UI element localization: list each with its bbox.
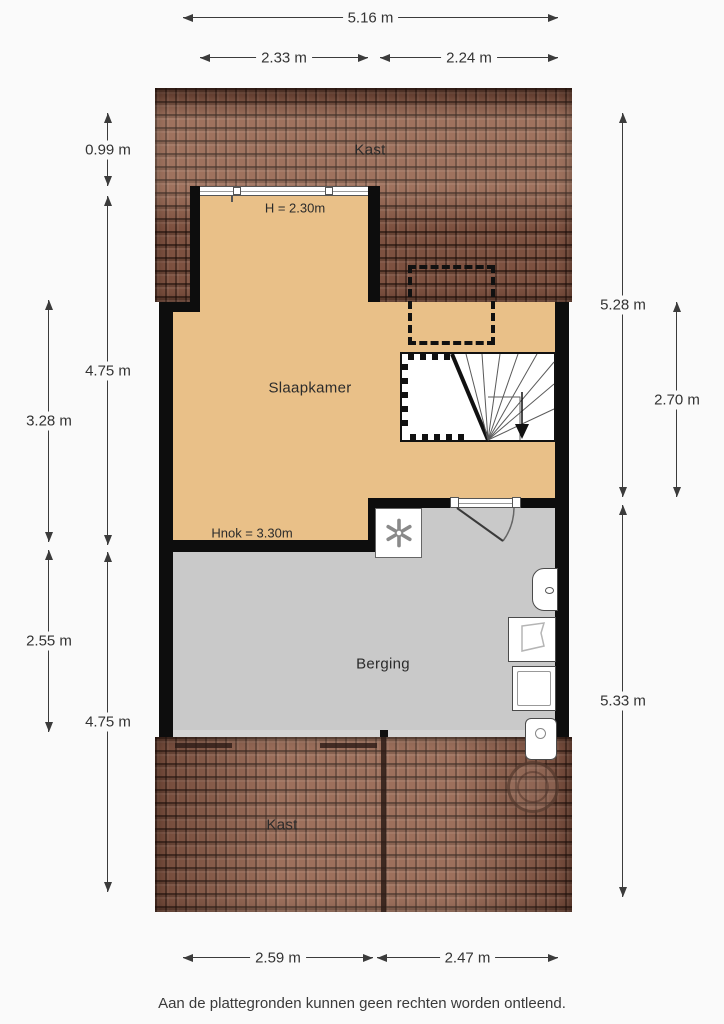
round-tank-vent: [507, 761, 559, 813]
dimension-label: 2.59 m: [250, 949, 306, 968]
wall-slaapkamer-bottom: [159, 540, 380, 552]
dimension-label: 2.33 m: [256, 49, 312, 68]
shower-tray: [525, 718, 557, 760]
dimension-label: 2.55 m: [21, 632, 77, 651]
dimension-bottom-right: 2.47 m: [377, 957, 558, 958]
dimension-bottom-left: 2.59 m: [183, 957, 373, 958]
berging-floor: [173, 552, 555, 737]
washing-machine-door: [517, 671, 551, 706]
window-tick: [231, 196, 233, 202]
floorplan: Kast H = 2.30m Slaapkamer Hnok = 3.30m B…: [155, 88, 572, 912]
washbasin: [532, 568, 558, 611]
washing-machine: [512, 666, 556, 711]
dimension-top-right: 2.24 m: [380, 57, 558, 58]
dimension-label: 2.70 m: [649, 390, 705, 409]
dimension-label: 4.75 m: [80, 361, 136, 380]
dimension-right-inner: 2.70 m: [676, 302, 677, 497]
dimension-label: 4.75 m: [80, 713, 136, 732]
ventilation-unit: [375, 508, 422, 558]
room-label-berging: Berging: [356, 656, 410, 673]
wall-dormer-right: [368, 186, 380, 302]
boiler: [508, 617, 556, 662]
window-mullion: [233, 187, 241, 195]
ridge-height-note: Hnok = 3.30m: [211, 526, 292, 541]
dimension-left-outer-upper: 3.28 m: [48, 300, 49, 542]
floorplan-page: { "page": { "background": "#fafafa", "di…: [0, 0, 724, 1024]
dimension-label: 0.99 m: [80, 140, 136, 159]
fan-icon: [381, 515, 417, 551]
dimension-label: 5.16 m: [343, 9, 399, 28]
dimension-label: 3.28 m: [21, 412, 77, 431]
height-note: H = 2.30m: [265, 201, 325, 216]
room-label-slaapkamer: Slaapkamer: [268, 380, 351, 397]
dormer-window: [200, 186, 368, 196]
dimension-top-left: 2.33 m: [200, 57, 368, 58]
wall-berging-top-left: [368, 498, 452, 508]
dimension-left-berging: 4.75 m: [107, 552, 108, 892]
dimension-left-dormer: 0.99 m: [107, 113, 108, 186]
roof-wall-mark: [175, 743, 232, 748]
wall-dormer-left: [190, 186, 200, 302]
dimension-left-slaapkamer: 4.75 m: [107, 196, 108, 545]
room-label-kast-top: Kast: [354, 142, 385, 159]
roof-wall-mark: [320, 743, 377, 748]
disclaimer-text: Aan de plattegronden kunnen geen rechten…: [0, 995, 724, 1012]
roof-divider-line: [381, 737, 386, 912]
dimension-label: 5.28 m: [595, 296, 651, 315]
dimension-label: 2.47 m: [440, 949, 496, 968]
floor-edge-tick: [380, 730, 388, 737]
dimension-label: 5.33 m: [595, 692, 651, 711]
wall-outer-right: [555, 302, 569, 737]
dimension-right-lower: 5.33 m: [622, 505, 623, 897]
vide-opening: [408, 265, 495, 345]
round-tank-inner-ring: [517, 771, 549, 803]
dimension-label: 2.24 m: [441, 49, 497, 68]
dimension-top-total: 5.16 m: [183, 17, 558, 18]
room-label-kast-bottom: Kast: [266, 817, 297, 834]
dimension-right-upper: 5.28 m: [622, 113, 623, 497]
wall-outer-left: [159, 302, 173, 737]
door-swing-arc: [445, 503, 525, 558]
tap-icon: [545, 587, 554, 594]
dimension-left-outer-lower: 2.55 m: [48, 550, 49, 732]
drain-icon: [535, 728, 546, 739]
boiler-outline-icon: [510, 619, 554, 659]
window-mullion: [325, 187, 333, 195]
roof-area-bottom: [155, 737, 572, 912]
staircase: [400, 352, 556, 442]
berging-floor-edge: [173, 730, 555, 737]
